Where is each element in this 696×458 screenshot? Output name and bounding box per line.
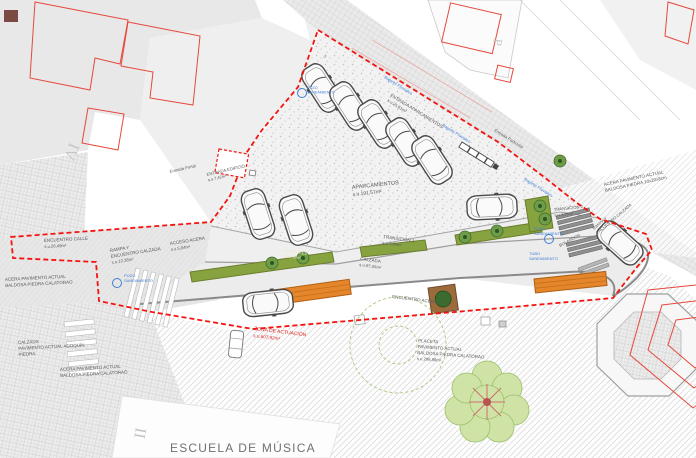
tree-icon [266, 257, 278, 269]
block-marker [4, 10, 18, 22]
plaza-object [499, 321, 506, 327]
tree-icon [534, 200, 546, 212]
tree-icon [539, 213, 551, 225]
car [466, 192, 517, 223]
label-line: SANEAMIENTO [529, 256, 558, 261]
label-line: SANEAMIENTO [307, 91, 335, 95]
cart [228, 330, 244, 358]
label-line: SANEAMIENTO [534, 231, 563, 236]
site-plan-canvas: Entrada Portal ENTRADA EDIFICIO s.u.7,42… [0, 0, 696, 458]
tree-icon [491, 225, 503, 237]
plaza-object [481, 317, 490, 325]
tree-icon [459, 231, 471, 243]
label-line: POZO [307, 86, 318, 90]
utility-box [249, 170, 256, 176]
tree-icon [554, 155, 566, 167]
page-title: ESCUELA DE MÚSICA [170, 440, 316, 455]
label-line: PIEDRA [18, 351, 35, 357]
sidewalk-left [0, 152, 88, 244]
site-plan-page: Entrada Portal ENTRADA EDIFICIO s.u.7,42… [0, 0, 696, 458]
label-line: SANEAMIENTO [124, 278, 153, 283]
